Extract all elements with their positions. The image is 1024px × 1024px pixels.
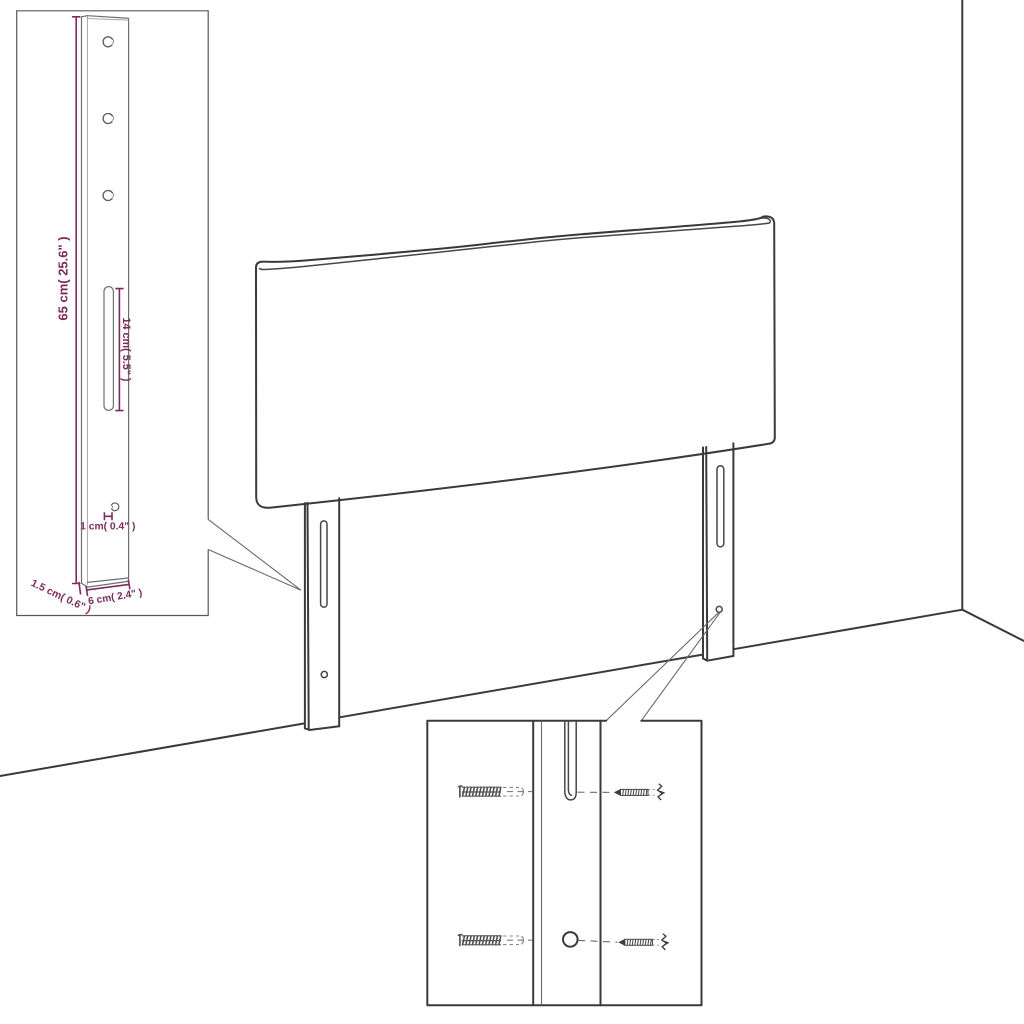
svg-text:14 cm( 5.5" ): 14 cm( 5.5" ) [120,318,132,382]
svg-text:65 cm( 25.6" ): 65 cm( 25.6" ) [55,236,70,320]
svg-text:1 cm( 0.4" ): 1 cm( 0.4" ) [80,521,135,532]
